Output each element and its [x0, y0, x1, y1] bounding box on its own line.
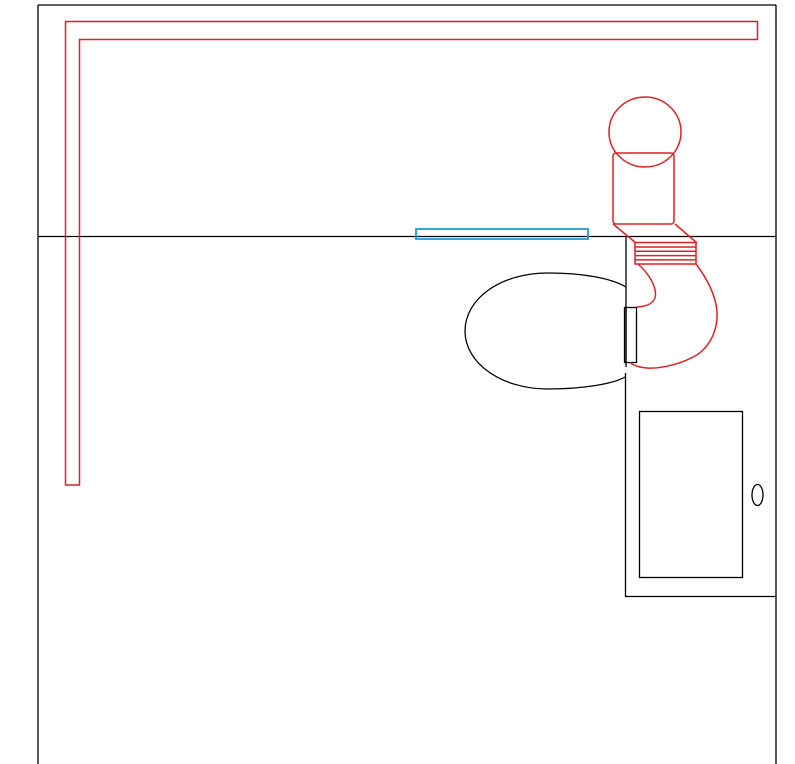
cad-canvas[interactable]	[0, 0, 795, 764]
red-flex-hose	[635, 243, 696, 265]
red-supply-pipe-run	[66, 22, 758, 486]
red-funnel-right	[675, 224, 697, 243]
teal-layer	[416, 229, 588, 239]
red-trap-curve-right	[630, 264, 717, 368]
red-flex-hose-ribs	[635, 247, 696, 260]
teal-vent-strip	[416, 229, 588, 239]
door-knob	[752, 485, 763, 506]
red-trap-curve-left	[637, 264, 656, 307]
red-duct-housing	[613, 153, 674, 224]
black-linework-layer	[38, 5, 776, 764]
oval-fixture	[465, 273, 626, 389]
door-panel	[640, 412, 743, 578]
drawing-page	[0, 0, 795, 764]
red-duct-circle	[609, 97, 681, 167]
red-funnel-left	[613, 224, 636, 243]
red-piping-layer	[66, 22, 758, 486]
